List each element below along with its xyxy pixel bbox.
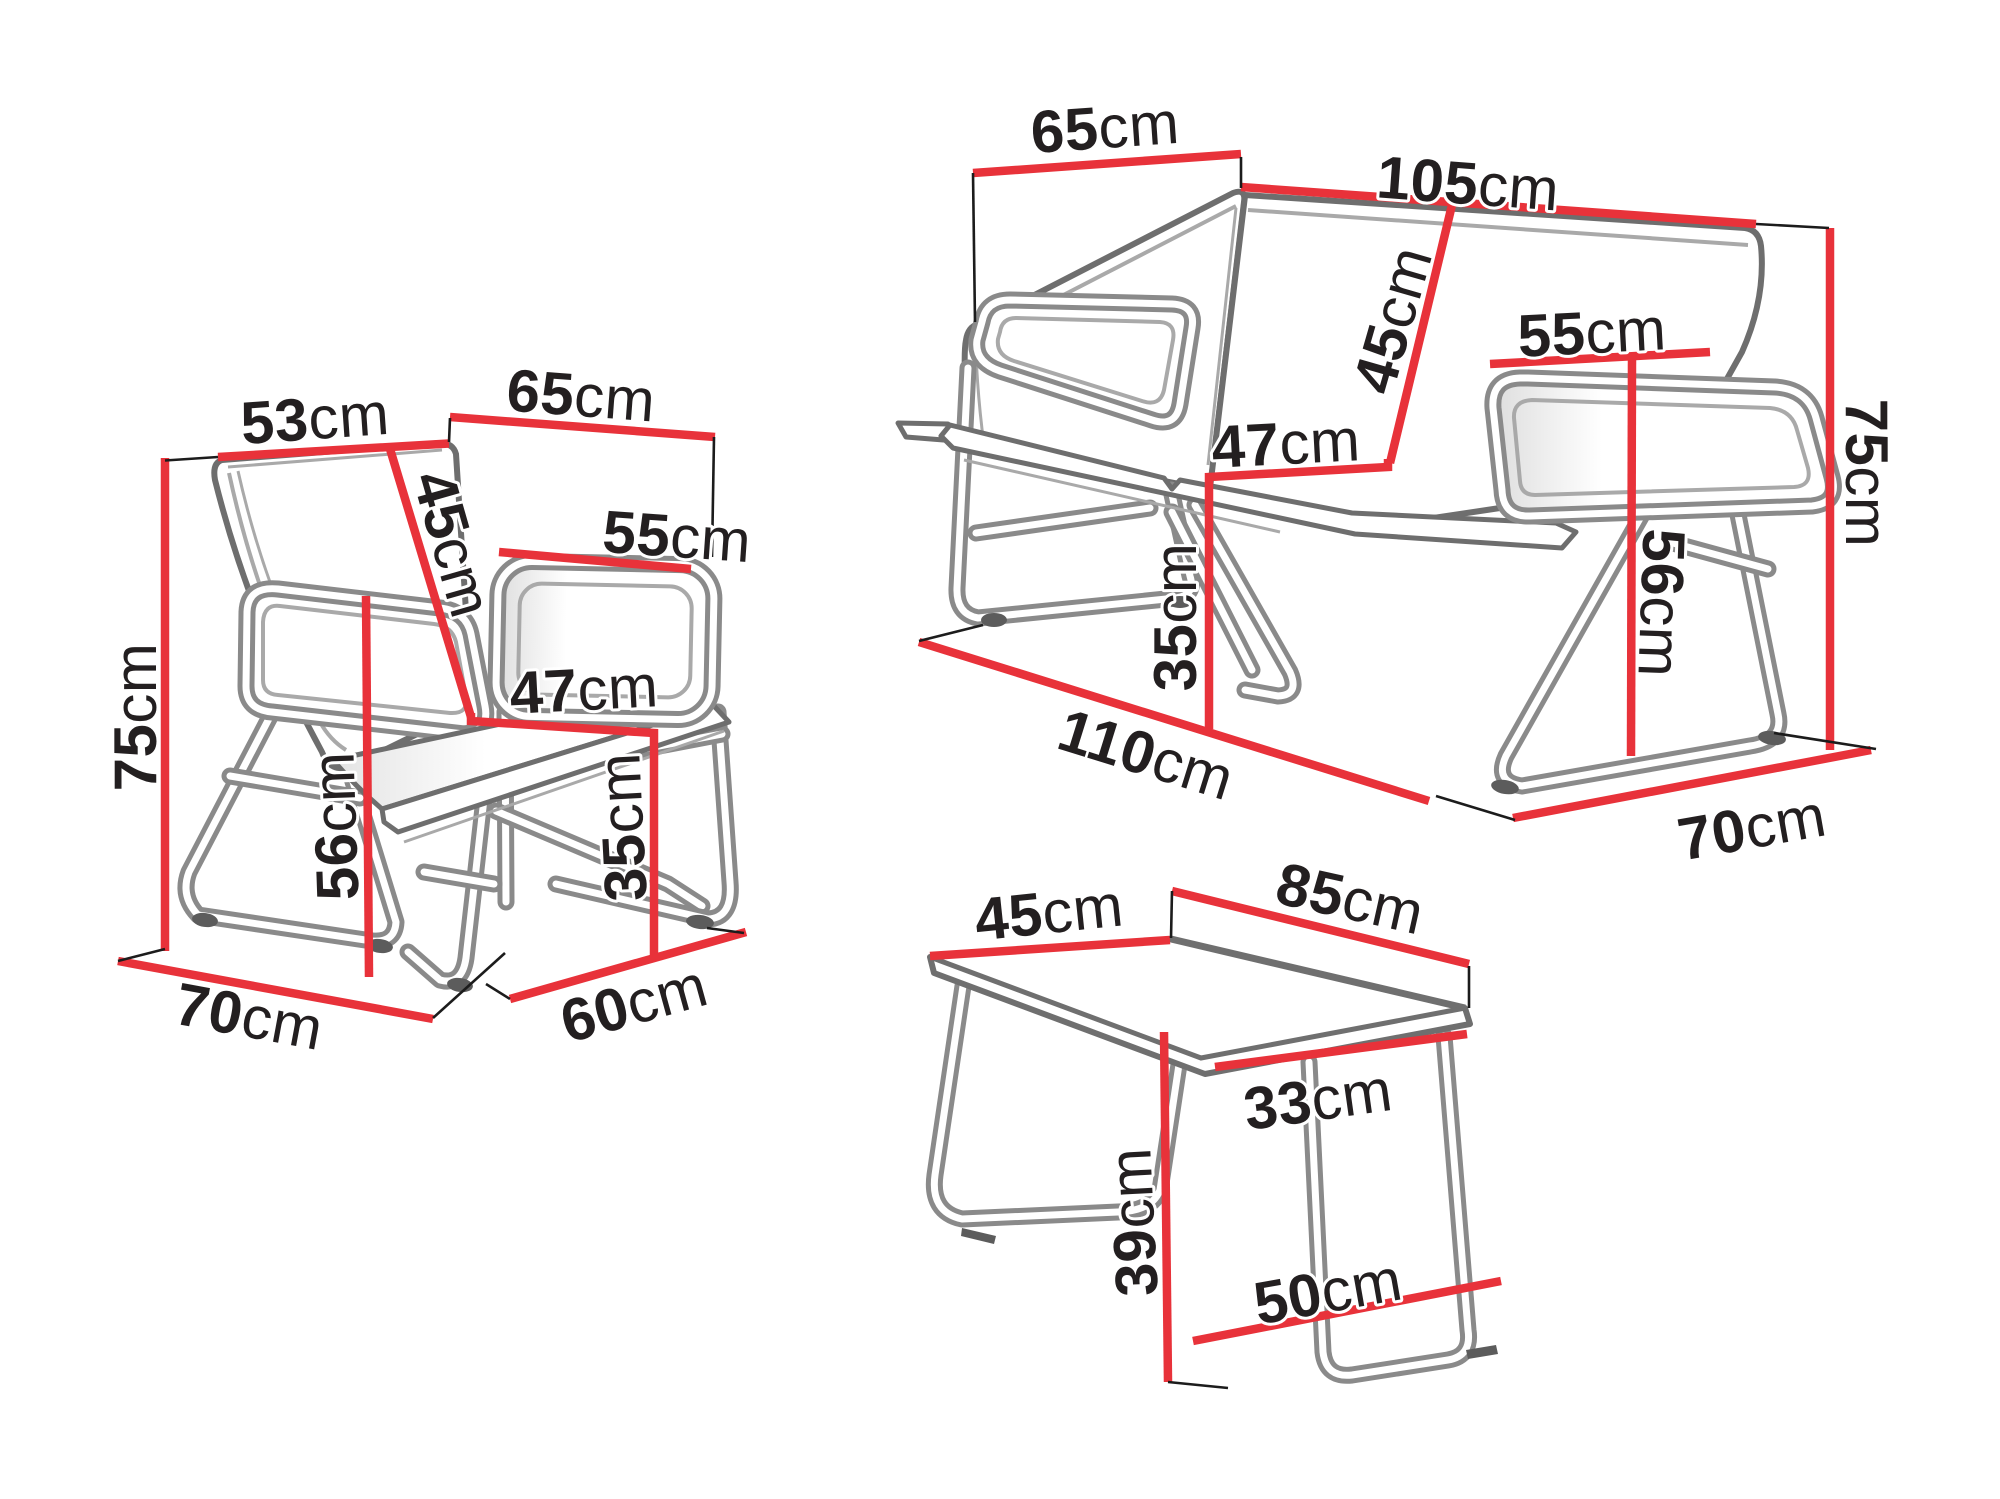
svg-text:56cm: 56cm [299,751,371,902]
svg-text:65cm: 65cm [1028,89,1181,166]
svg-text:47cm: 47cm [508,652,660,727]
svg-text:55cm: 55cm [601,498,754,575]
svg-text:47cm: 47cm [1210,406,1362,481]
svg-text:53cm: 53cm [238,380,391,457]
svg-text:75cm: 75cm [1833,399,1900,548]
svg-text:39cm: 39cm [1096,1146,1171,1298]
svg-text:35cm: 35cm [585,751,660,903]
svg-text:35cm: 35cm [1142,543,1209,692]
svg-text:75cm: 75cm [102,643,169,792]
svg-text:55cm: 55cm [1516,295,1668,370]
svg-text:65cm: 65cm [504,357,657,435]
svg-text:56cm: 56cm [1625,528,1697,679]
svg-text:105cm: 105cm [1375,143,1562,223]
